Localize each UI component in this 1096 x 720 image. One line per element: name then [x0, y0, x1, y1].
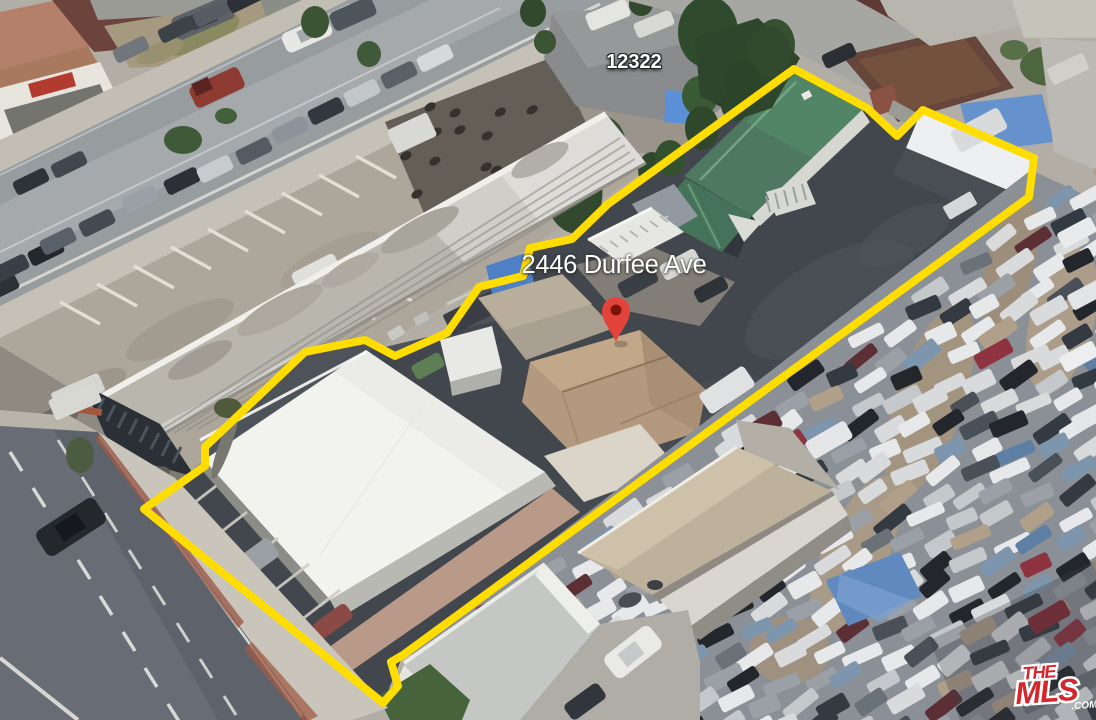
svg-text:MLS: MLS: [1014, 672, 1080, 711]
svg-text:2446 Durfee Ave: 2446 Durfee Ave: [521, 251, 706, 279]
svg-text:.COM: .COM: [1071, 699, 1096, 712]
svg-text:12322: 12322: [606, 51, 662, 73]
